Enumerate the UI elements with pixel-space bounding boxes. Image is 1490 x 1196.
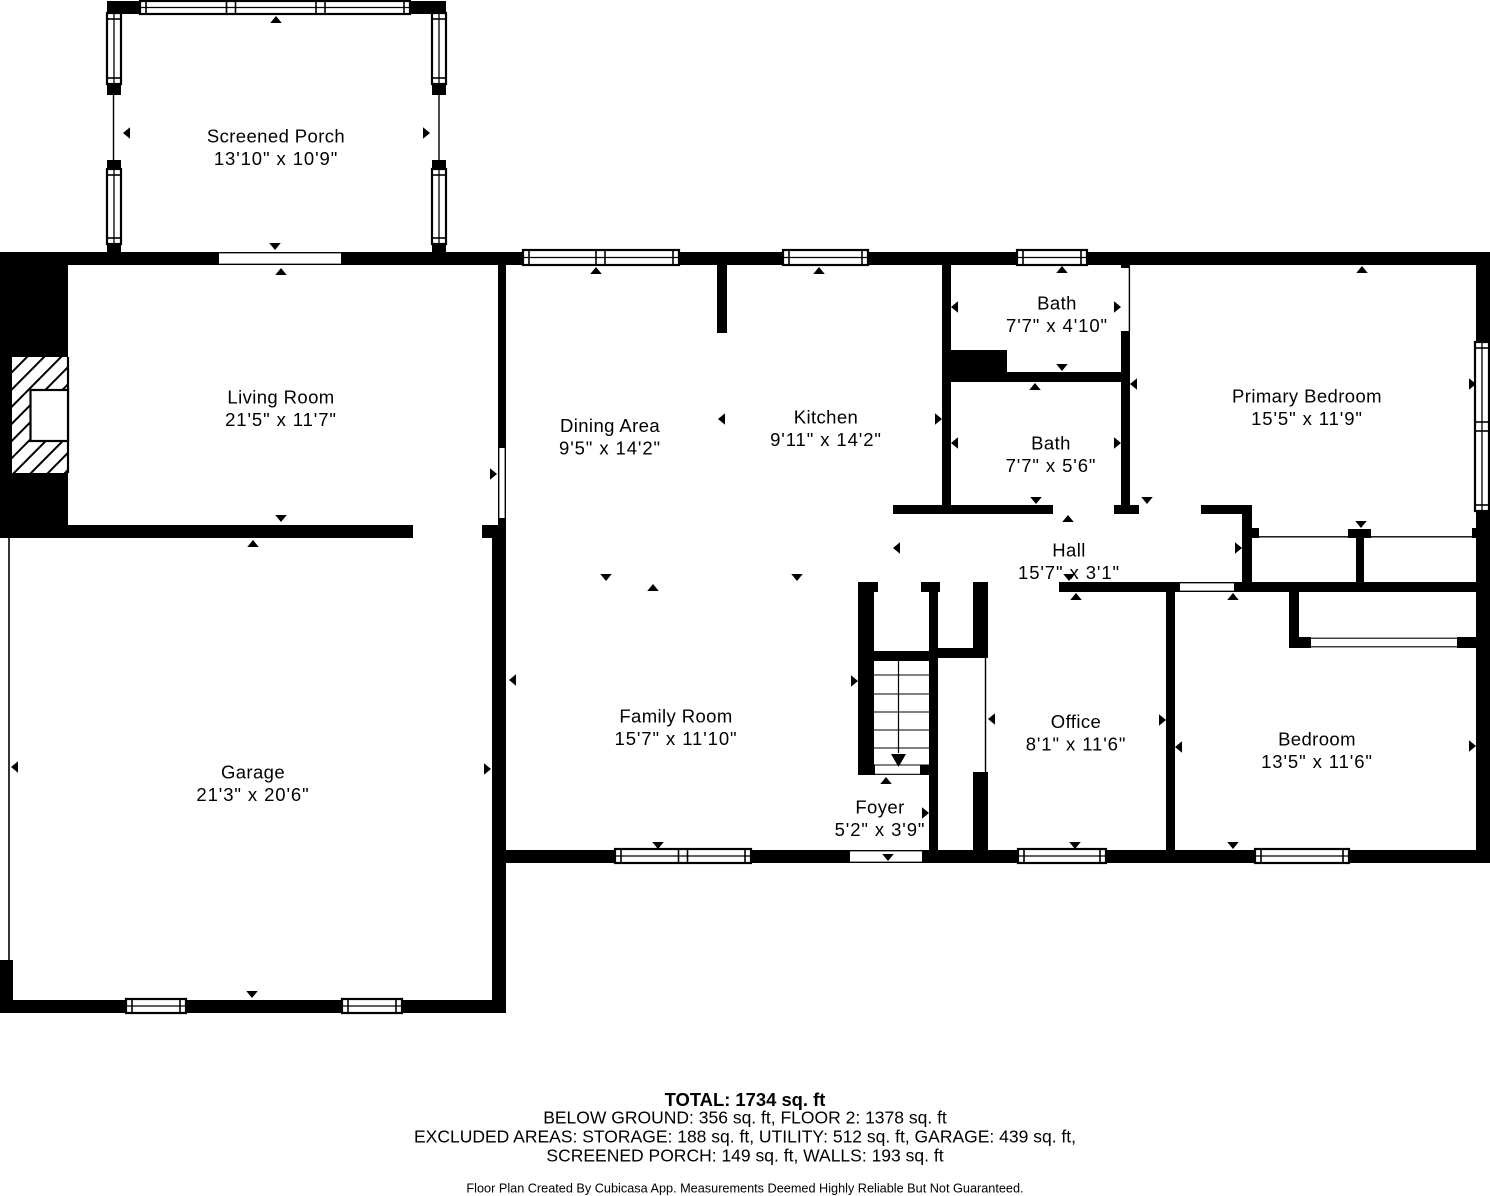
svg-text:Floor Plan Created By Cubicasa: Floor Plan Created By Cubicasa App. Meas… xyxy=(466,1181,1023,1195)
svg-text:9'5" x 14'2": 9'5" x 14'2" xyxy=(559,437,661,458)
svg-text:5'2" x 3'9": 5'2" x 3'9" xyxy=(835,819,926,840)
svg-text:Bedroom: Bedroom xyxy=(1278,728,1356,749)
svg-text:21'3" x 20'6": 21'3" x 20'6" xyxy=(196,784,309,805)
svg-text:EXCLUDED AREAS: STORAGE: 188 s: EXCLUDED AREAS: STORAGE: 188 sq. ft, UTI… xyxy=(414,1127,1076,1147)
svg-text:Family Room: Family Room xyxy=(619,705,732,726)
svg-text:Bath: Bath xyxy=(1037,292,1077,313)
svg-text:21'5" x 11'7": 21'5" x 11'7" xyxy=(225,409,337,430)
svg-text:Foyer: Foyer xyxy=(855,796,904,817)
svg-text:7'7" x 4'10": 7'7" x 4'10" xyxy=(1006,315,1108,336)
svg-text:13'5" x 11'6": 13'5" x 11'6" xyxy=(1261,751,1373,772)
svg-text:7'7" x 5'6": 7'7" x 5'6" xyxy=(1006,455,1097,476)
svg-text:13'10" x 10'9": 13'10" x 10'9" xyxy=(214,148,338,169)
svg-text:8'1" x 11'6": 8'1" x 11'6" xyxy=(1026,733,1127,754)
svg-text:Screened Porch: Screened Porch xyxy=(207,125,345,146)
svg-text:Primary Bedroom: Primary Bedroom xyxy=(1232,385,1382,406)
svg-text:15'5" x 11'9": 15'5" x 11'9" xyxy=(1251,408,1363,429)
svg-text:Living Room: Living Room xyxy=(227,386,334,407)
svg-text:SCREENED PORCH: 149 sq. ft, WA: SCREENED PORCH: 149 sq. ft, WALLS: 193 s… xyxy=(546,1146,943,1166)
svg-text:Dining Area: Dining Area xyxy=(560,415,660,436)
svg-text:15'7" x 11'10": 15'7" x 11'10" xyxy=(615,728,738,749)
svg-text:Hall: Hall xyxy=(1052,539,1085,560)
svg-text:9'11" x 14'2": 9'11" x 14'2" xyxy=(770,429,882,450)
svg-text:BELOW GROUND: 356 sq. ft, FLOO: BELOW GROUND: 356 sq. ft, FLOOR 2: 1378 … xyxy=(543,1108,947,1128)
svg-text:Bath: Bath xyxy=(1031,432,1071,453)
svg-text:Kitchen: Kitchen xyxy=(794,406,859,427)
svg-text:Garage: Garage xyxy=(221,761,285,782)
svg-text:Office: Office xyxy=(1051,711,1101,732)
